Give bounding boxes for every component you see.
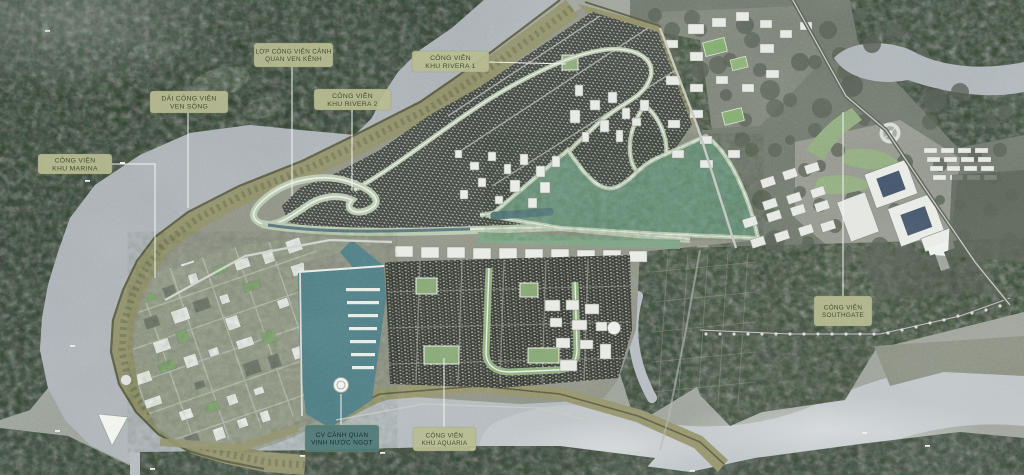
svg-text:CÔNG VIÊN: CÔNG VIÊN	[430, 53, 471, 62]
svg-text:KHU AQUARIA: KHU AQUARIA	[422, 440, 468, 447]
svg-text:KHU MARINA: KHU MARINA	[52, 166, 98, 173]
svg-text:KHU RIVERA 2: KHU RIVERA 2	[327, 101, 377, 108]
svg-text:KHU RIVERA 1: KHU RIVERA 1	[425, 63, 475, 70]
svg-text:CÔNG VIÊN: CÔNG VIÊN	[332, 91, 373, 100]
svg-text:CÔNG VIÊN: CÔNG VIÊN	[426, 431, 463, 439]
svg-text:CÔNG VIÊN: CÔNG VIÊN	[55, 155, 96, 164]
svg-text:VEN SÔNG: VEN SÔNG	[170, 102, 208, 111]
svg-text:SOUTHGATE: SOUTHGATE	[822, 312, 864, 319]
svg-text:VỊNH NƯỚC NGỌT: VỊNH NƯỚC NGỌT	[311, 438, 373, 447]
svg-text:DẢI CÔNG VIÊN: DẢI CÔNG VIÊN	[161, 93, 216, 102]
svg-text:QUAN VEN KÊNH: QUAN VEN KÊNH	[265, 54, 322, 63]
svg-text:CÔNG VIÊN: CÔNG VIÊN	[824, 302, 863, 311]
svg-text:LỚP CÔNG VIÊN CẢNH: LỚP CÔNG VIÊN CẢNH	[255, 46, 331, 55]
svg-text:CV CẢNH QUAN: CV CẢNH QUAN	[316, 430, 369, 439]
